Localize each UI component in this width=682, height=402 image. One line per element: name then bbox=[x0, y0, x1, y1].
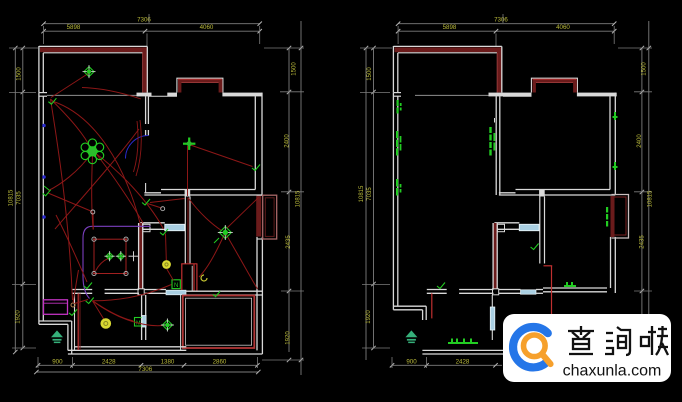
svg-text:1500: 1500 bbox=[292, 62, 298, 76]
svg-text:2400: 2400 bbox=[637, 134, 643, 148]
svg-text:900: 900 bbox=[406, 359, 417, 366]
svg-text:1500: 1500 bbox=[642, 62, 648, 76]
svg-text:1500: 1500 bbox=[16, 67, 22, 81]
svg-text:900: 900 bbox=[52, 359, 63, 366]
svg-text:2428: 2428 bbox=[102, 359, 116, 366]
svg-text:1500: 1500 bbox=[367, 67, 373, 81]
svg-text:7035: 7035 bbox=[367, 187, 373, 201]
svg-text:5898: 5898 bbox=[67, 24, 81, 31]
svg-text:4060: 4060 bbox=[556, 24, 570, 31]
svg-text:1920: 1920 bbox=[366, 310, 372, 324]
svg-text:10815: 10815 bbox=[296, 190, 302, 207]
svg-text:2860: 2860 bbox=[213, 359, 227, 366]
svg-text:10815: 10815 bbox=[8, 189, 14, 206]
svg-text:1920: 1920 bbox=[286, 331, 292, 345]
svg-text:1920: 1920 bbox=[15, 310, 21, 324]
svg-text:5898: 5898 bbox=[443, 24, 457, 31]
svg-text:2428: 2428 bbox=[456, 359, 470, 366]
svg-text:N: N bbox=[174, 283, 178, 289]
svg-text:chaxunla.com: chaxunla.com bbox=[563, 363, 662, 380]
svg-text:2400: 2400 bbox=[285, 134, 291, 148]
svg-text:4060: 4060 bbox=[200, 24, 214, 31]
svg-text:10815: 10815 bbox=[359, 185, 365, 202]
svg-text:7035: 7035 bbox=[16, 191, 22, 205]
svg-text:7306: 7306 bbox=[138, 366, 152, 373]
svg-text:7306: 7306 bbox=[494, 17, 508, 24]
svg-text:2435: 2435 bbox=[286, 235, 292, 249]
svg-text:2435: 2435 bbox=[640, 235, 646, 249]
svg-text:10815: 10815 bbox=[648, 190, 654, 207]
svg-text:1380: 1380 bbox=[161, 359, 175, 366]
